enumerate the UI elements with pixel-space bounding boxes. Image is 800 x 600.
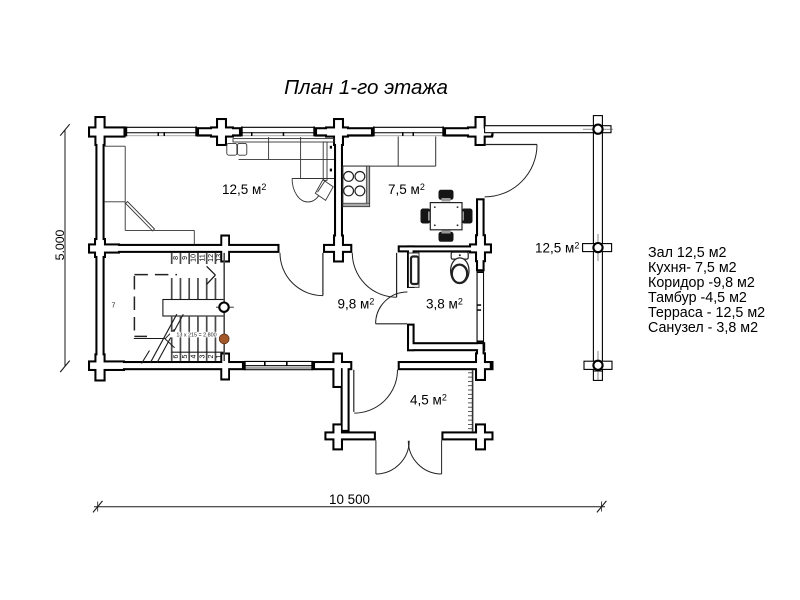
svg-text:План 1-го этажа: План 1-го этажа bbox=[284, 76, 448, 99]
svg-text:3,8 м2: 3,8 м2 bbox=[426, 297, 463, 312]
svg-text:7: 7 bbox=[112, 303, 116, 310]
svg-text:Терраса - 12,5 м2: Терраса - 12,5 м2 bbox=[648, 305, 765, 321]
svg-text:4,5 м2: 4,5 м2 bbox=[410, 392, 447, 407]
svg-text:7,5 м2: 7,5 м2 bbox=[388, 182, 425, 197]
svg-text:2: 2 bbox=[208, 354, 215, 358]
svg-text:5: 5 bbox=[182, 354, 189, 358]
svg-text:12,5 м2: 12,5 м2 bbox=[535, 240, 579, 255]
svg-text:12: 12 bbox=[208, 254, 215, 262]
svg-text:Кухня- 7,5 м2: Кухня- 7,5 м2 bbox=[648, 260, 737, 276]
svg-text:13: 13 bbox=[216, 254, 223, 262]
svg-text:12,5 м2: 12,5 м2 bbox=[222, 182, 266, 197]
svg-text:1: 1 bbox=[216, 354, 223, 358]
svg-text:10: 10 bbox=[191, 254, 198, 262]
svg-text:6: 6 bbox=[173, 354, 180, 358]
svg-text:3: 3 bbox=[200, 354, 207, 358]
svg-text:10 500: 10 500 bbox=[329, 492, 370, 507]
svg-text:5.000: 5.000 bbox=[53, 229, 67, 260]
svg-text:9,8 м2: 9,8 м2 bbox=[338, 297, 375, 312]
svg-text:13 x 215 = 2.800: 13 x 215 = 2.800 bbox=[176, 333, 216, 339]
svg-text:9: 9 bbox=[182, 256, 189, 260]
svg-text:11: 11 bbox=[200, 254, 207, 261]
svg-text:Зал 12,5 м2: Зал 12,5 м2 bbox=[648, 245, 727, 261]
svg-text:8: 8 bbox=[173, 256, 180, 260]
svg-text:Тамбур -4,5 м2: Тамбур -4,5 м2 bbox=[648, 290, 747, 306]
svg-text:Санузел - 3,8 м2: Санузел - 3,8 м2 bbox=[648, 320, 758, 336]
svg-text:Коридор -9,8 м2: Коридор -9,8 м2 bbox=[648, 275, 755, 291]
svg-text:4: 4 bbox=[191, 354, 198, 358]
